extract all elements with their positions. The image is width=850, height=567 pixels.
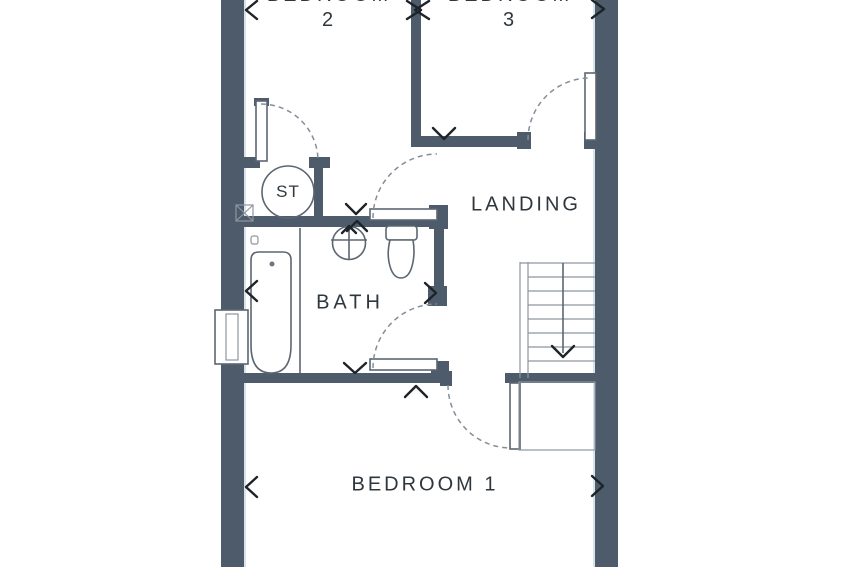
bath-lower-door-leaf: [370, 359, 437, 370]
chevron-bedroom2-left: [246, 1, 257, 19]
chevron-bedroom1-up: [405, 386, 427, 397]
wall-bedroom2-3-divider: [411, 0, 421, 142]
wall-bedroom1-north-left: [221, 373, 449, 383]
bedroom1-door-swing-arc: [448, 385, 511, 448]
landing-label: LANDING: [471, 194, 581, 217]
bathtub: [251, 228, 300, 373]
toilet-cistern: [386, 226, 417, 240]
storage-label: ST: [276, 182, 300, 202]
post-bedroom1-door-left: [440, 371, 452, 386]
bedroom1-label: BEDROOM 1: [351, 474, 498, 497]
bedroom1-door: [448, 383, 520, 449]
washbasin: [331, 226, 367, 260]
bathtub-tap: [251, 236, 258, 244]
wall-left: [221, 0, 244, 567]
bedroom2-label: BEDROOM 2: [267, 0, 391, 33]
window-frame: [215, 310, 248, 364]
storage-cupboard: [236, 166, 314, 221]
stairs-treads: [520, 263, 595, 361]
bedroom2-number: 2: [267, 8, 391, 33]
under-stairs-outline: [519, 382, 595, 450]
storage-door-leaf: [256, 101, 267, 161]
chevron-bath-down: [344, 363, 366, 373]
bedroom3-door-swing-arc: [528, 78, 590, 140]
wall-left-edge: [244, 0, 246, 567]
wall-bedroom3-bottom: [411, 136, 531, 147]
window-left: [215, 310, 248, 364]
bedroom3-door: [528, 73, 596, 140]
bedroom3-label: BEDROOM 3: [448, 0, 572, 33]
bedroom3-number: 3: [448, 8, 572, 33]
floor-plan: BEDROOM 2 BEDROOM 3 LANDING BATH BEDROOM…: [0, 0, 850, 567]
bedroom2-name: BEDROOM: [267, 0, 391, 8]
staircase: [519, 262, 595, 450]
bath-upper-door: [370, 154, 437, 220]
storage-door-swing-arc: [261, 104, 318, 161]
chevron-landing-down: [346, 204, 366, 214]
bath-label: BATH: [316, 292, 384, 315]
wall-storage-right: [314, 157, 323, 220]
bath-upper-door-leaf: [370, 209, 437, 220]
toilet-bowl: [388, 240, 414, 278]
bathtub-drain: [270, 262, 275, 267]
post-bedroom3-door-left: [517, 132, 531, 149]
storage-door: [254, 98, 318, 161]
bedroom3-name: BEDROOM: [448, 0, 572, 8]
chevron-bedroom1-left: [246, 477, 257, 497]
toilet: [386, 226, 417, 278]
bedroom3-door-leaf: [585, 73, 596, 140]
stairs-left-rail: [520, 262, 528, 378]
